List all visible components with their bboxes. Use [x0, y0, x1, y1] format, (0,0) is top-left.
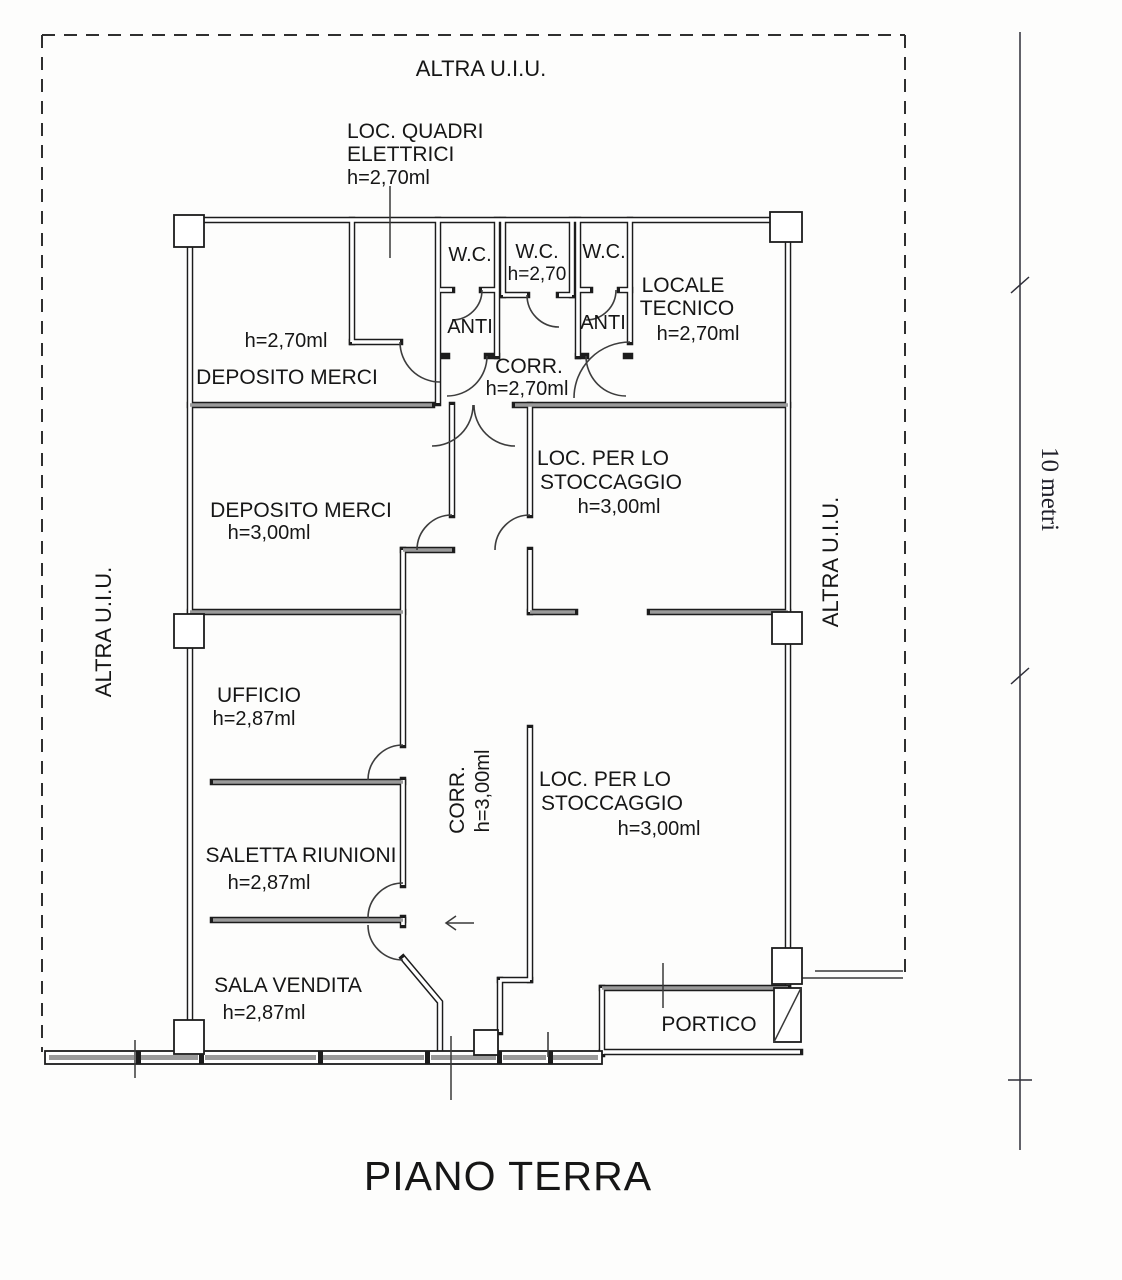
svg-text:ELETTRICI: ELETTRICI — [347, 143, 454, 166]
dimension-line — [1008, 32, 1032, 1150]
svg-text:LOC. PER LO: LOC. PER LO — [539, 768, 671, 791]
svg-text:SALETTA RIUNIONI: SALETTA RIUNIONI — [206, 844, 397, 867]
svg-text:DEPOSITO MERCI: DEPOSITO MERCI — [196, 366, 378, 389]
svg-text:h=3,00ml: h=3,00ml — [472, 750, 494, 833]
entry-post — [474, 1030, 498, 1055]
svg-text:UFFICIO: UFFICIO — [217, 684, 301, 707]
svg-text:h=2,70: h=2,70 — [508, 264, 567, 285]
svg-text:h=2,87ml: h=2,87ml — [228, 872, 311, 894]
room-label-wc-right: W.C. — [582, 241, 625, 263]
room-label-portico: PORTICO — [661, 1013, 756, 1036]
svg-text:h=2,70ml: h=2,70ml — [486, 378, 569, 400]
room-label-locale-tecnico: LOCALE TECNICO h=2,70ml — [640, 274, 740, 345]
svg-text:h=3,00ml: h=3,00ml — [228, 522, 311, 544]
room-label-ufficio: UFFICIO h=2,87ml — [213, 684, 301, 730]
room-label-anti-left: ANTI — [447, 316, 493, 338]
svg-text:h=2,70ml: h=2,70ml — [657, 323, 740, 345]
room-label-deposito-merci-2: DEPOSITO MERCI h=3,00ml — [210, 499, 392, 544]
boundary-label-top: ALTRA U.I.U. — [416, 56, 546, 81]
svg-text:h=2,87ml: h=2,87ml — [213, 708, 296, 730]
plan-title: PIANO TERRA — [364, 1153, 652, 1199]
room-label-saletta-riunioni: SALETTA RIUNIONI h=2,87ml — [206, 844, 397, 894]
svg-text:h=3,00ml: h=3,00ml — [578, 496, 661, 518]
svg-text:h=2,87ml: h=2,87ml — [223, 1002, 306, 1024]
property-boundary — [42, 35, 905, 1052]
svg-text:STOCCAGGIO: STOCCAGGIO — [541, 792, 683, 815]
room-label-sala-vendita: SALA VENDITA h=2,87ml — [214, 974, 362, 1024]
floor-plan-page: ALTRA U.I.U. ALTRA U.I.U. ALTRA U.I.U. L… — [0, 0, 1122, 1280]
svg-text:TECNICO: TECNICO — [640, 297, 735, 320]
svg-text:h=3,00ml: h=3,00ml — [618, 818, 701, 840]
floor-plan-drawing: ALTRA U.I.U. ALTRA U.I.U. ALTRA U.I.U. L… — [0, 0, 1122, 1280]
svg-text:CORR.: CORR. — [495, 355, 563, 378]
svg-text:h=2,70ml: h=2,70ml — [347, 167, 430, 189]
storefront-wall — [45, 1051, 602, 1064]
room-label-stoccaggio-1: LOC. PER LO STOCCAGGIO h=3,00ml — [537, 447, 682, 518]
svg-text:h=2,70ml: h=2,70ml — [245, 330, 328, 352]
room-label-anti-right: ANTI — [580, 312, 626, 334]
room-label-corridoio-1: CORR. h=2,70ml — [486, 355, 569, 400]
svg-text:SALA VENDITA: SALA VENDITA — [214, 974, 362, 997]
svg-text:W.C.: W.C. — [515, 241, 558, 263]
room-label-corridoio-2: CORR. h=3,00ml — [446, 750, 494, 834]
svg-text:CORR.: CORR. — [446, 766, 469, 834]
svg-text:DEPOSITO MERCI: DEPOSITO MERCI — [210, 499, 392, 522]
boundary-label-left: ALTRA U.I.U. — [91, 567, 116, 697]
svg-text:LOC. QUADRI: LOC. QUADRI — [347, 120, 484, 143]
svg-text:LOCALE: LOCALE — [642, 274, 725, 297]
boundary-label-right: ALTRA U.I.U. — [818, 497, 843, 627]
room-label-stoccaggio-2: LOC. PER LO STOCCAGGIO h=3,00ml — [539, 768, 700, 840]
svg-text:STOCCAGGIO: STOCCAGGIO — [540, 471, 682, 494]
room-label-wc-left: W.C. — [448, 244, 491, 266]
room-label-loc-quadri: LOC. QUADRI ELETTRICI h=2,70ml — [347, 120, 484, 189]
svg-text:LOC. PER LO: LOC. PER LO — [537, 447, 669, 470]
dimension-label: 10 metri — [1036, 447, 1063, 531]
room-label-wc-center: W.C. h=2,70 — [508, 241, 567, 285]
